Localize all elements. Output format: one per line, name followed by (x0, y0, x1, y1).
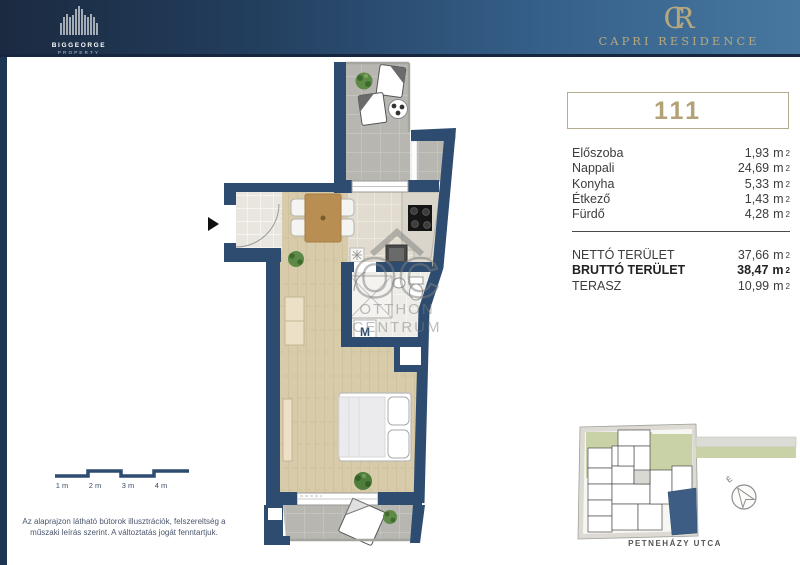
floorplan-drawing: M (200, 55, 470, 565)
panel-divider (572, 231, 790, 232)
entry-door-gap (224, 205, 236, 243)
room-row: Nappali24,69m2 (572, 161, 790, 176)
green-strip (696, 447, 796, 458)
road-strip (696, 437, 796, 447)
biggeorge-name: BIGGEORGE (46, 42, 112, 49)
street-label: PETNEHÁZY UTCA (600, 539, 750, 548)
svg-text:OC: OC (353, 246, 441, 309)
scale-label-1: 1 m (56, 481, 69, 490)
table-knot (321, 216, 326, 221)
terrace-wall-notch (268, 508, 282, 520)
total-row-brutto: BRUTTÓ TERÜLET38,47m2 (572, 263, 790, 278)
room-row: Étkező1,43m2 (572, 192, 790, 207)
scale-label-3: 3 m (122, 481, 135, 490)
biggeorge-towers-icon (51, 3, 107, 36)
living-plant (288, 251, 304, 267)
room-row: Fürdő4,28m2 (572, 207, 790, 222)
disclaimer-text: Az alaprajzon látható bútorok illusztrác… (10, 516, 238, 538)
total-row-netto: NETTÓ TERÜLET37,66m2 (572, 248, 790, 263)
room-row: Előszoba1,93m2 (572, 146, 790, 161)
terrace-divider (411, 141, 417, 182)
capri-residence-name: CAPRI RESIDENCE (596, 34, 762, 48)
shelf-strip (283, 399, 292, 461)
scale-bar: 1 m 2 m 3 m 4 m (48, 460, 198, 492)
biggeorge-logo: BIGGEORGE PROPERTY (46, 3, 112, 55)
svg-text:OTTHON: OTTHON (359, 301, 434, 318)
bottom-window (297, 493, 378, 505)
header-bar: BIGGEORGE PROPERTY CR CAPRI RESIDENCE (0, 0, 800, 57)
bedroom-plant (354, 472, 372, 490)
floorplan-sheet: BIGGEORGE PROPERTY CR CAPRI RESIDENCE (0, 0, 800, 565)
cr-monogram-icon: CR (596, 2, 762, 34)
scale-label-2: 2 m (89, 481, 102, 490)
apartment-number: 111 (654, 97, 702, 125)
bed (339, 393, 411, 461)
biggeorge-sub: PROPERTY (46, 50, 112, 55)
shaft-notch (400, 347, 421, 365)
room-row: Konyha5,33m2 (572, 177, 790, 192)
otthon-centrum-watermark: OC OTTHON CENTRUM (353, 232, 442, 336)
total-row-terasz: TERASZ10,99m2 (572, 279, 790, 294)
capri-residence-logo: CR CAPRI RESIDENCE (596, 2, 762, 48)
lounge-chair-2 (358, 92, 387, 125)
room-list: Előszoba1,93m2 Nappali24,69m2 Konyha5,33… (572, 146, 790, 222)
svg-text:CENTRUM: CENTRUM (353, 319, 442, 336)
left-accent-strip (0, 57, 7, 565)
compass-icon (732, 484, 756, 509)
entrance-arrow-icon (208, 217, 219, 231)
highlighted-unit (668, 488, 697, 535)
terrace-sliding-door (352, 181, 408, 192)
scale-label-4: 4 m (155, 481, 168, 490)
apartment-number-box: 111 (567, 92, 789, 129)
north-label: É (725, 474, 735, 484)
terrace-plant (356, 73, 373, 90)
totals-list: NETTÓ TERÜLET37,66m2 BRUTTÓ TERÜLET38,47… (572, 248, 790, 294)
disclaimer-line-1: Az alaprajzon látható bútorok illusztrác… (10, 516, 238, 527)
disclaimer-line-2: műszaki leírás szerint. A változtatás jo… (10, 527, 238, 538)
bottom-terrace-plant (383, 510, 397, 524)
terrace-table (389, 100, 408, 119)
